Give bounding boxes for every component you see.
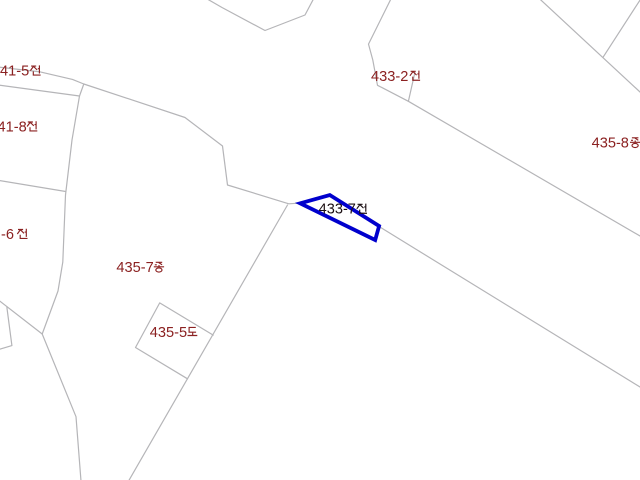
svg-text:435-5: 435-5 — [150, 325, 187, 341]
svg-text:433-7: 433-7 — [319, 201, 356, 217]
svg-text:41-5: 41-5 — [0, 64, 29, 80]
svg-text:435-7: 435-7 — [116, 260, 153, 276]
svg-text:-6: -6 — [1, 227, 14, 243]
svg-text:433-2: 433-2 — [371, 69, 408, 85]
svg-text:41-8: 41-8 — [0, 120, 27, 136]
svg-text:435-8: 435-8 — [592, 136, 629, 152]
